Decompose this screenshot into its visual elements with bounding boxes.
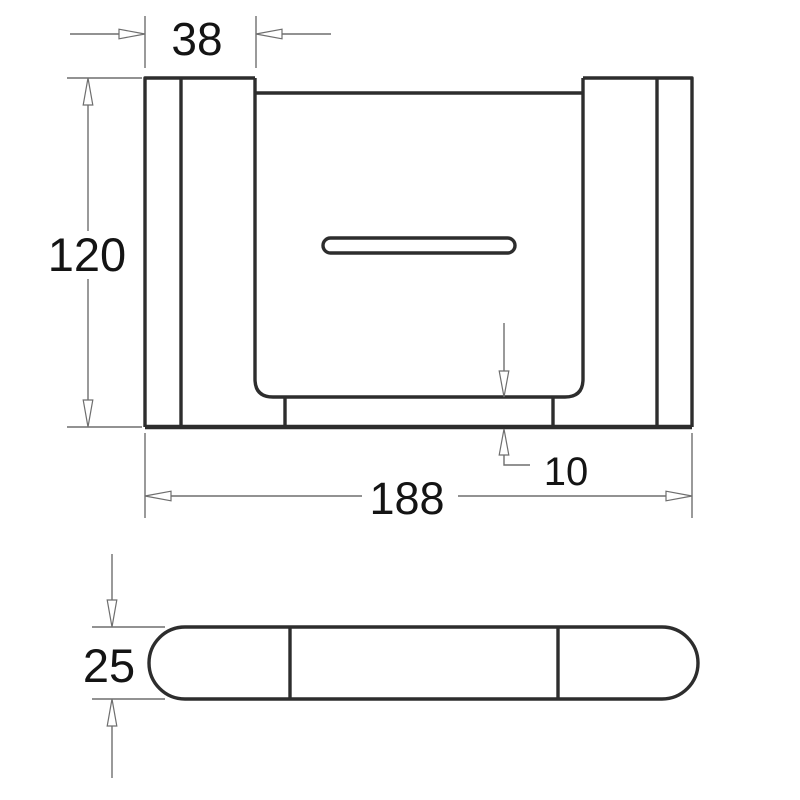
arrow-right-icon xyxy=(119,29,145,39)
arrow-down-icon xyxy=(83,400,93,427)
dim-bracket-width-label: 38 xyxy=(171,13,222,65)
arrow-left-icon xyxy=(256,29,282,39)
arrow-down-icon xyxy=(107,600,117,627)
dim-profile-depth-label: 25 xyxy=(83,639,135,692)
drawing-canvas: 38 120 10 188 25 xyxy=(0,0,800,800)
dim-base-offset-label: 10 xyxy=(544,450,589,494)
dim-bracket-width: 38 xyxy=(70,13,331,68)
side-view xyxy=(149,627,698,699)
arrow-up-icon xyxy=(83,78,93,105)
dim-overall-height: 120 xyxy=(48,78,142,427)
dim-profile-depth: 25 xyxy=(83,554,165,778)
front-view xyxy=(145,78,692,427)
arrow-right-icon xyxy=(666,491,692,501)
arrow-up-icon xyxy=(107,699,117,726)
technical-drawing: 38 120 10 188 25 xyxy=(0,0,800,800)
right-panel-outline xyxy=(583,78,692,427)
dim-overall-width-label: 188 xyxy=(369,473,444,524)
dim-overall-height-label: 120 xyxy=(48,228,126,281)
arrow-up-icon xyxy=(499,429,509,455)
arrow-left-icon xyxy=(145,491,171,501)
left-panel-outline xyxy=(145,78,255,427)
drain-slot xyxy=(323,238,515,253)
leader-line xyxy=(504,455,530,465)
dim-base-offset: 10 xyxy=(499,323,588,494)
dim-overall-width: 188 xyxy=(145,433,692,524)
profile-outline xyxy=(149,627,698,699)
arrow-down-icon xyxy=(499,371,509,397)
